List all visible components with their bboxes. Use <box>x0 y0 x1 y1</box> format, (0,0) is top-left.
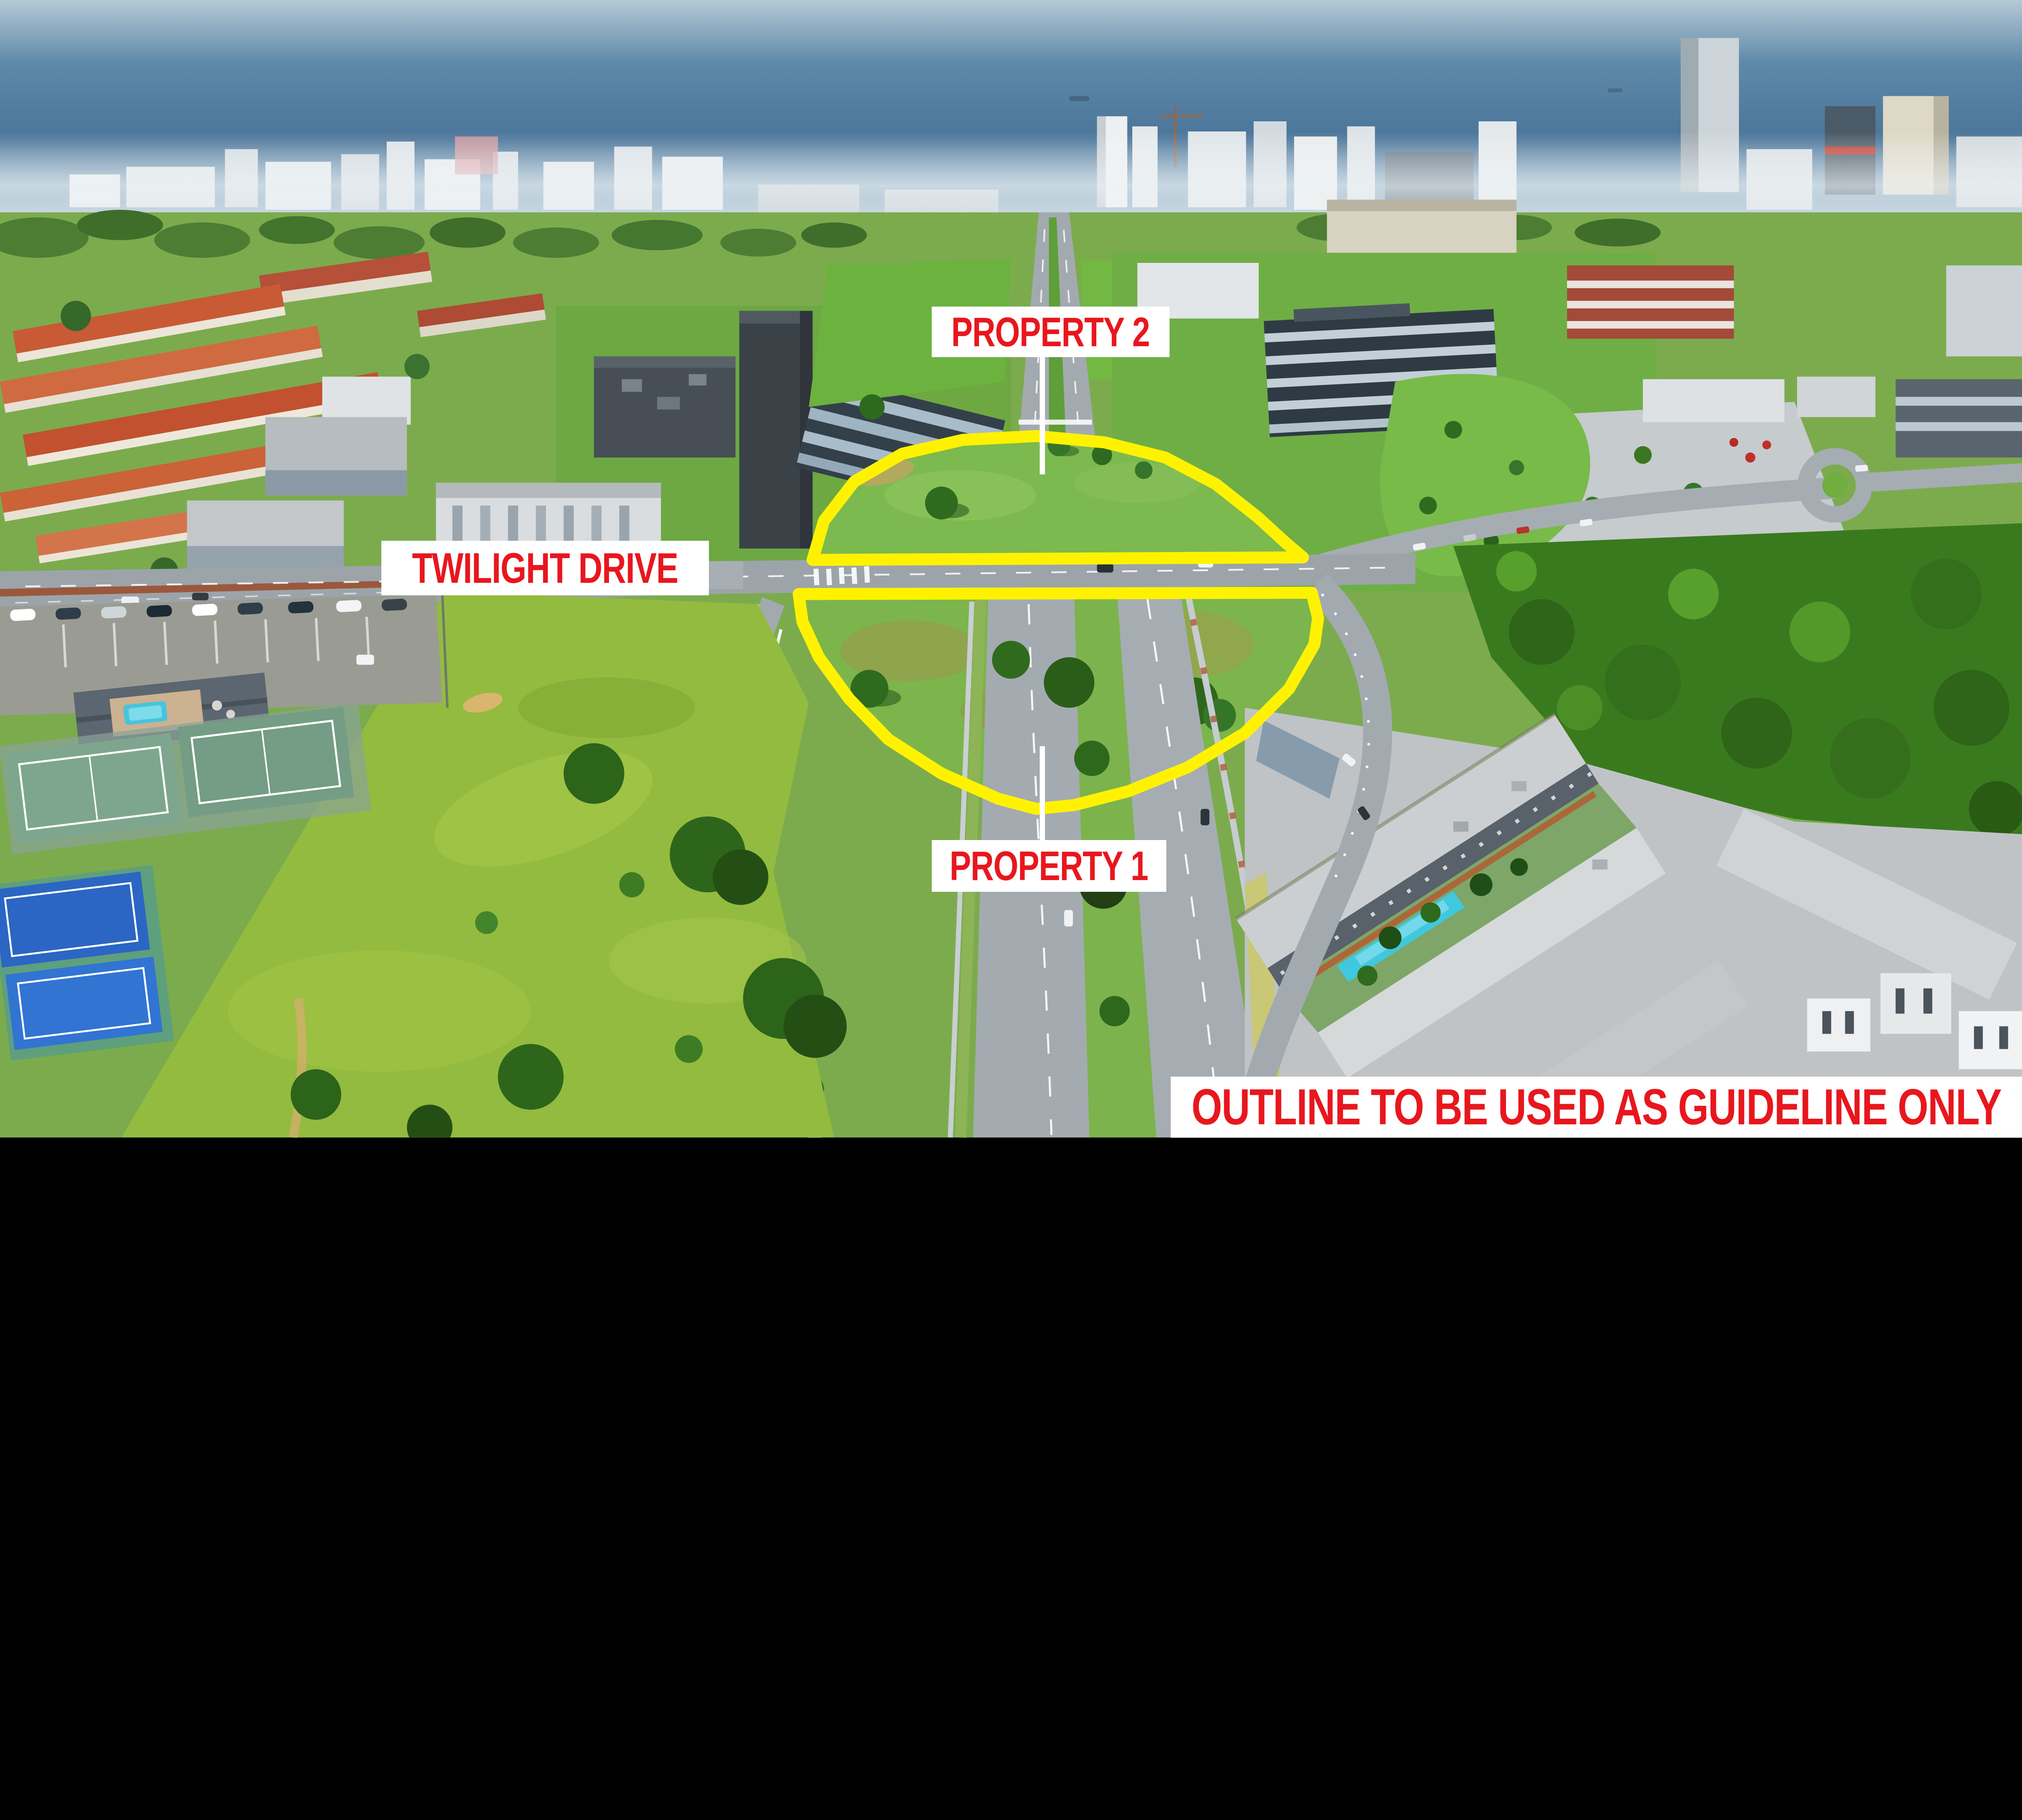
twilight-drive-label-text: TWILIGHT DRIVE <box>412 547 678 590</box>
palm-tree <box>1421 902 1441 923</box>
palm-tree <box>1357 966 1377 986</box>
disclaimer-label-text: OUTLINE TO BE USED AS GUIDELINE ONLY <box>1191 1082 2001 1132</box>
palm-tree <box>1510 858 1528 876</box>
property2-label-text: PROPERTY 2 <box>951 311 1150 353</box>
ship <box>1607 89 1623 92</box>
gray-apartment-block <box>187 501 344 571</box>
palm-tree <box>1379 927 1401 949</box>
car <box>1097 564 1114 573</box>
aerial-photo <box>0 0 2022 1138</box>
palm-tree <box>1470 873 1492 896</box>
ship <box>1069 96 1089 102</box>
property1-label: PROPERTY 1 <box>932 840 1166 892</box>
car <box>1201 809 1210 825</box>
padel-courts <box>0 865 174 1061</box>
twilight-drive-label: TWILIGHT DRIVE <box>381 541 709 595</box>
property1-callout-line <box>1040 746 1045 842</box>
property1-label-text: PROPERTY 1 <box>950 845 1148 887</box>
car <box>356 655 374 665</box>
disclaimer-label: OUTLINE TO BE USED AS GUIDELINE ONLY <box>1171 1077 2022 1137</box>
aerial-photo-stage: PROPERTY 2 TWILIGHT DRIVE PROPERTY 1 OUT… <box>0 0 2022 1138</box>
car <box>1064 910 1073 927</box>
gray-apartment-block <box>265 417 407 495</box>
property2-label: PROPERTY 2 <box>932 307 1170 357</box>
property2-callout-line <box>1040 355 1045 474</box>
truck <box>192 593 209 601</box>
